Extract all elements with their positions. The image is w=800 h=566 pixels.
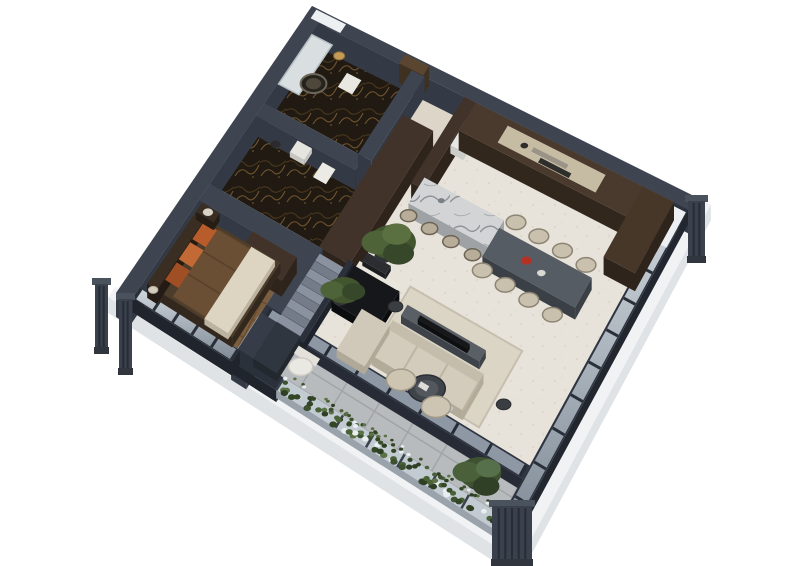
column-right-corner <box>685 195 708 263</box>
pendant-light <box>270 140 280 148</box>
drum-side-table-left <box>388 301 403 312</box>
armchair-left <box>386 369 415 390</box>
column-left-outer <box>92 278 111 354</box>
column-bottom-corner <box>489 500 535 566</box>
floorplan-3d-render <box>0 0 800 566</box>
floorplan-stage <box>0 0 800 566</box>
floor-lamp <box>148 286 157 293</box>
bathtub-round <box>301 74 327 93</box>
bathroom-vanity-gold <box>334 52 345 60</box>
drum-side-table-right <box>496 399 511 410</box>
armchair-right <box>421 396 450 417</box>
